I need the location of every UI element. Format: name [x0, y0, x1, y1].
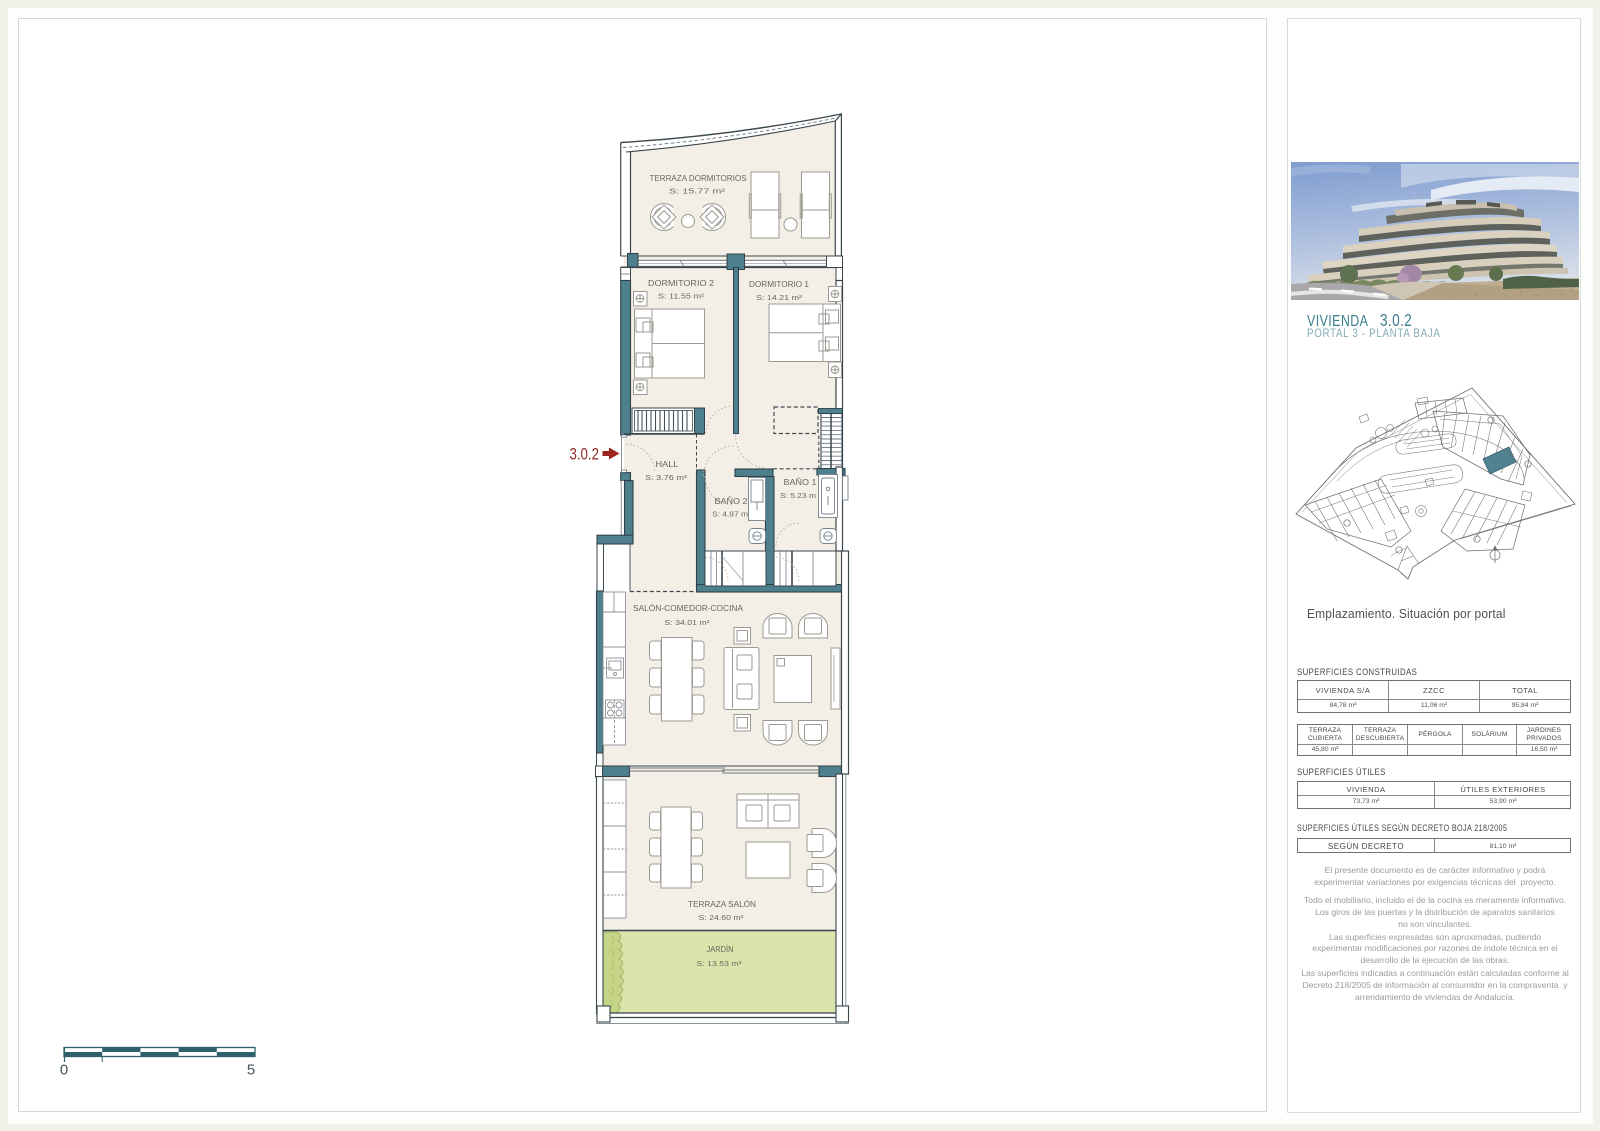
svg-text:BAÑO 1: BAÑO 1	[784, 478, 817, 487]
svg-text:BAÑO 2: BAÑO 2	[715, 497, 748, 506]
svg-text:DORMITORIO 1: DORMITORIO 1	[749, 280, 809, 289]
svg-text:S: 13.53 m²: S: 13.53 m²	[697, 959, 743, 968]
svg-text:JARDÍN: JARDÍN	[707, 945, 734, 954]
svg-text:S: 4.97 m: S: 4.97 m	[712, 510, 748, 519]
svg-text:TERRAZA SALÓN: TERRAZA SALÓN	[688, 900, 756, 909]
svg-text:3.0.2: 3.0.2	[570, 445, 600, 464]
svg-text:0: 0	[60, 1062, 68, 1079]
svg-text:TERRAZA DORMITORIOS: TERRAZA DORMITORIOS	[650, 174, 747, 183]
svg-text:S: 24.60 m²: S: 24.60 m²	[699, 913, 745, 922]
svg-text:S: 14.21 m²: S: 14.21 m²	[756, 293, 803, 302]
svg-text:DORMITORIO 2: DORMITORIO 2	[648, 279, 714, 288]
svg-text:S: 5.23 m: S: 5.23 m	[780, 491, 816, 500]
svg-text:S: 3.76 m²: S: 3.76 m²	[645, 473, 688, 482]
svg-text:HALL: HALL	[656, 460, 680, 469]
svg-text:5: 5	[247, 1062, 255, 1079]
svg-text:SALÓN-COMEDOR-COCINA: SALÓN-COMEDOR-COCINA	[633, 604, 744, 613]
svg-text:S: 15.77 m²: S: 15.77 m²	[669, 187, 726, 196]
svg-text:S: 34.01 m²: S: 34.01 m²	[665, 618, 711, 627]
svg-text:S: 11.55 m²: S: 11.55 m²	[658, 292, 705, 301]
